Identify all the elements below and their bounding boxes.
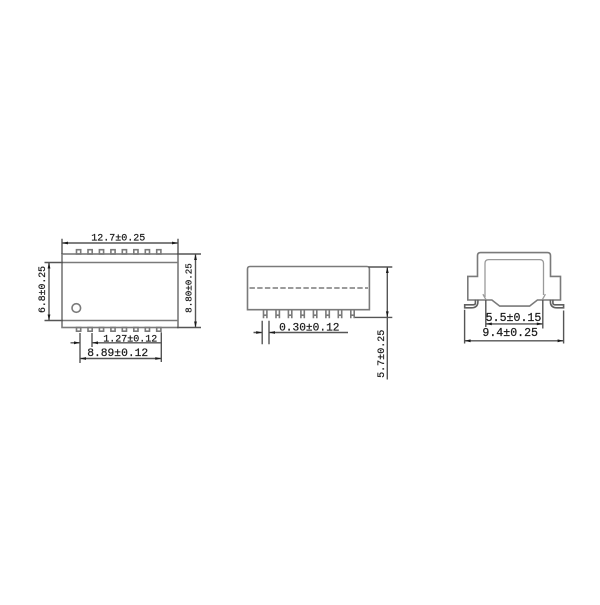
svg-text:8.80±0.25: 8.80±0.25 — [183, 263, 194, 313]
svg-text:6.8±0.25: 6.8±0.25 — [37, 266, 48, 313]
svg-text:12.7±0.25: 12.7±0.25 — [91, 234, 145, 245]
svg-text:8.89±0.12: 8.89±0.12 — [87, 348, 148, 360]
svg-text:1.27±0.12: 1.27±0.12 — [103, 334, 157, 345]
svg-text:5.5±0.15: 5.5±0.15 — [486, 312, 542, 325]
svg-text:9.4±0.25: 9.4±0.25 — [482, 327, 538, 340]
svg-text:5.7±0.25: 5.7±0.25 — [377, 330, 388, 378]
svg-text:0.30±0.12: 0.30±0.12 — [279, 323, 339, 335]
